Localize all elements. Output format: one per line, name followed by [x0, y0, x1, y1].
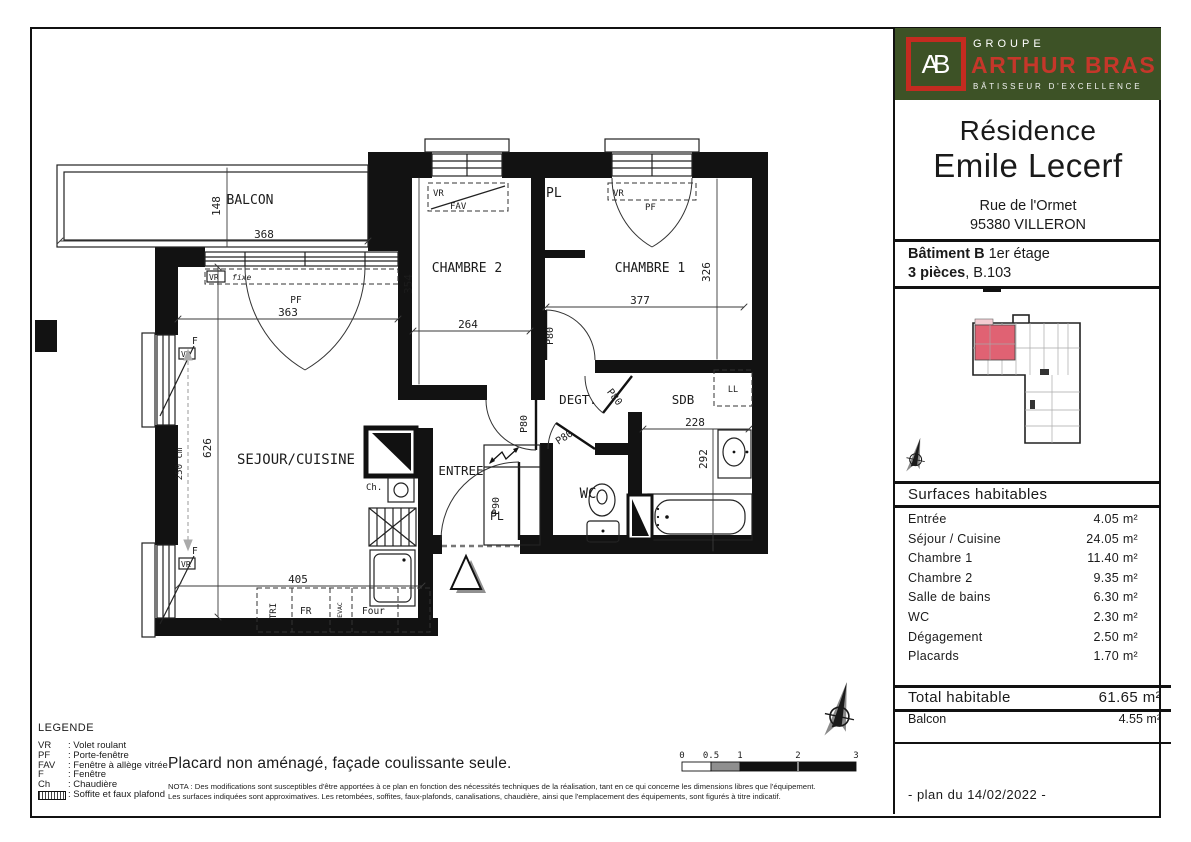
logo-tagline: BÂTISSEUR D'EXCELLENCE: [973, 82, 1142, 91]
table-row: Dégagement2.50 m²: [895, 628, 1148, 648]
total-row: Total habitable 61.65 m²: [895, 685, 1171, 712]
nota-text: NOTA : Des modifications sont susceptibl…: [168, 782, 863, 801]
address-line2: 95380 VILLERON: [895, 216, 1161, 235]
residence-title: Résidence Emile Lecerf Rue de l'Ormet 95…: [895, 115, 1161, 235]
nota-line1: NOTA : Des modifications sont susceptibl…: [168, 782, 863, 792]
nota-line2: Les surfaces indiquées sont approximativ…: [168, 792, 863, 802]
table-row: Chambre 111.40 m²: [895, 549, 1148, 569]
unit-building: Bâtiment B 1er étage: [908, 245, 1161, 264]
logo-brand: ARTHUR BRAS: [971, 52, 1156, 79]
placard-note: Placard non aménagé, façade coulissante …: [168, 755, 512, 773]
table-row: Chambre 29.35 m²: [895, 569, 1148, 589]
residence-line2: Emile Lecerf: [895, 147, 1161, 185]
total-label: Total habitable: [908, 689, 1011, 709]
logo-groupe: GROUPE: [973, 38, 1045, 50]
legend-title: LEGENDE: [38, 722, 258, 734]
surfaces-table: Entrée4.05 m² Séjour / Cuisine24.05 m² C…: [895, 510, 1148, 667]
sidebar: AB GROUPE ARTHUR BRAS BÂTISSEUR D'EXCELL…: [893, 27, 1161, 814]
address-line1: Rue de l'Ormet: [895, 197, 1161, 216]
balcony-row: Balcon 4.55 m²: [895, 709, 1171, 744]
table-row: Séjour / Cuisine24.05 m²: [895, 530, 1148, 550]
plan-date: - plan du 14/02/2022 -: [908, 787, 1046, 802]
unit-info: Bâtiment B 1er étage 3 pièces, B.103: [895, 239, 1161, 289]
balcony-value: 4.55 m²: [1119, 712, 1161, 742]
table-row: WC2.30 m²: [895, 608, 1148, 628]
table-row: Salle de bains6.30 m²: [895, 588, 1148, 608]
logo-monogram: AB: [906, 37, 966, 91]
floor-plan-document: BALCON VR FAV VR PF: [0, 0, 1191, 842]
soffite-icon: [38, 791, 66, 800]
residence-line1: Résidence: [895, 115, 1161, 147]
total-value: 61.65 m²: [1099, 689, 1161, 709]
table-row: Placards1.70 m²: [895, 647, 1148, 667]
company-logo: AB GROUPE ARTHUR BRAS BÂTISSEUR D'EXCELL…: [895, 28, 1161, 100]
table-row: Entrée4.05 m²: [895, 510, 1148, 530]
unit-type: 3 pièces, B.103: [908, 264, 1161, 283]
surfaces-header: Surfaces habitables: [895, 481, 1161, 508]
balcony-label: Balcon: [908, 712, 946, 742]
